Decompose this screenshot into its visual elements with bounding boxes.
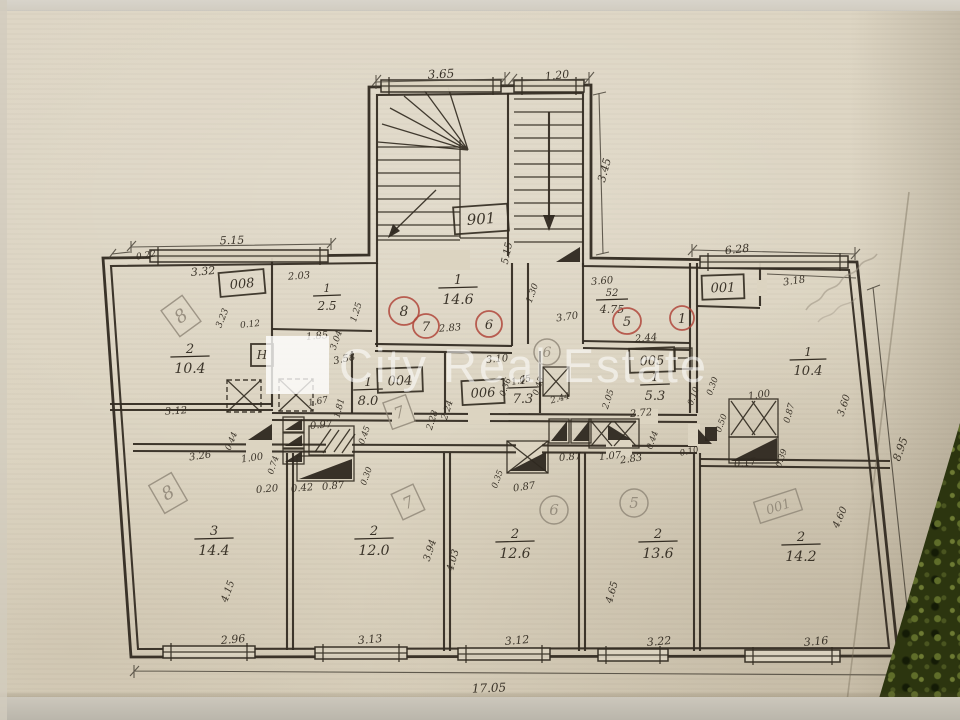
- svg-text:12.6: 12.6: [499, 546, 530, 562]
- dim-label: 3.94: [422, 538, 439, 563]
- dim-label: 1.81: [333, 397, 348, 419]
- svg-text:3.13: 3.13: [357, 632, 383, 647]
- svg-text:008: 008: [229, 276, 255, 293]
- svg-text:2: 2: [369, 524, 378, 539]
- svg-text:12.0: 12.0: [358, 543, 389, 559]
- dim-label: 0.12: [240, 319, 261, 331]
- dim-label: 3.60: [591, 275, 615, 288]
- dim-line: [767, 274, 856, 278]
- pencil-apartment-mark: 7: [391, 484, 425, 520]
- dim-label: 0.87: [783, 402, 798, 424]
- svg-text:0.10: 0.10: [679, 445, 700, 459]
- svg-text:3.65: 3.65: [427, 66, 454, 81]
- room-code-badge: 901: [453, 204, 509, 235]
- twin-door-leaves: [549, 419, 591, 443]
- dim-label: 0.44: [645, 430, 661, 451]
- dim-label: 2.44: [634, 332, 658, 345]
- staircase: [377, 87, 583, 256]
- room-area-label: 524.75: [596, 288, 628, 316]
- svg-text:1: 1: [454, 273, 462, 288]
- dim-label: 3.10: [486, 353, 510, 366]
- wardrobe-cross: [227, 380, 261, 412]
- dim-label: 3.22: [646, 634, 672, 649]
- room-code-badge: 001: [702, 274, 745, 299]
- svg-text:2.96: 2.96: [219, 632, 246, 647]
- apartment-number-mark: 7: [413, 314, 439, 338]
- svg-text:8: 8: [170, 305, 192, 329]
- pencil-apartment-mark: 6: [534, 339, 560, 365]
- dim-label: 0.30: [705, 375, 721, 397]
- dim-label: 5.15: [220, 234, 245, 248]
- svg-text:6: 6: [549, 501, 559, 519]
- room-code-badge: 005: [629, 347, 675, 373]
- svg-text:2: 2: [185, 342, 194, 357]
- svg-text:1.00: 1.00: [747, 388, 771, 402]
- svg-text:4.65: 4.65: [604, 580, 621, 605]
- svg-text:0.10: 0.10: [686, 385, 702, 407]
- door-symbol: [556, 247, 580, 262]
- svg-text:4.03: 4.03: [445, 548, 462, 573]
- svg-text:0.87: 0.87: [512, 480, 536, 494]
- outer-wall: [103, 85, 898, 657]
- room-area-label: 214.2: [781, 530, 820, 565]
- room-area-label: 15.3: [640, 370, 670, 404]
- dim-label: 2.72: [629, 407, 653, 420]
- labels-layer: 3.651.203.459015.155.150.223.320082.0312…: [135, 66, 910, 695]
- svg-text:5.15: 5.15: [500, 241, 515, 265]
- dim-label: 0.45: [357, 425, 373, 446]
- svg-text:2.24: 2.24: [440, 399, 456, 422]
- door-symbol: [248, 424, 272, 440]
- svg-text:3.70: 3.70: [555, 310, 579, 324]
- dim-label: 2.96: [219, 632, 246, 647]
- dim-label: 0.74: [266, 455, 281, 476]
- dim-label: 3.18: [782, 274, 806, 288]
- svg-text:3.32: 3.32: [190, 264, 216, 279]
- dim-label: 0.35: [490, 469, 506, 490]
- dim-label: 0.10: [679, 445, 700, 459]
- dim-label: 3.26: [188, 449, 212, 463]
- svg-text:0.17: 0.17: [733, 456, 757, 470]
- svg-text:13.6: 13.6: [642, 546, 673, 562]
- svg-text:1: 1: [324, 282, 331, 295]
- svg-text:2.5: 2.5: [316, 299, 336, 313]
- svg-text:901: 901: [466, 209, 496, 229]
- radiator-badge: H: [251, 344, 273, 366]
- svg-text:0.74: 0.74: [266, 455, 281, 476]
- floor-plan-photo: 3.651.203.459015.155.150.223.320082.0312…: [0, 0, 960, 720]
- svg-text:3.10: 3.10: [486, 353, 510, 366]
- svg-text:1.00: 1.00: [240, 451, 264, 465]
- svg-text:3.60: 3.60: [591, 275, 615, 288]
- dim-label: 0.17: [733, 456, 757, 470]
- windows-layer: [150, 77, 848, 665]
- stair-treads-left: [377, 147, 460, 236]
- interior-wall: [110, 404, 273, 410]
- dim-label: 3.70: [555, 310, 579, 324]
- svg-text:0.97: 0.97: [310, 419, 334, 432]
- svg-text:1: 1: [364, 375, 372, 389]
- dim-label: 0.10: [686, 385, 702, 407]
- svg-text:8: 8: [158, 481, 178, 505]
- svg-text:52: 52: [606, 288, 619, 299]
- svg-text:2.83: 2.83: [618, 452, 643, 466]
- svg-text:1: 1: [651, 370, 659, 384]
- room-area-label: 12.5: [313, 282, 341, 313]
- svg-text:H: H: [256, 348, 268, 362]
- dim-label: 1.20: [544, 68, 570, 83]
- svg-text:3.12: 3.12: [165, 405, 188, 418]
- dim-label: 2.24: [440, 399, 456, 422]
- pencil-apartment-mark: 5: [620, 489, 648, 517]
- svg-text:3.94: 3.94: [422, 538, 439, 563]
- dim-label: 0.87: [512, 480, 536, 494]
- svg-text:2: 2: [510, 527, 519, 542]
- svg-text:0.87: 0.87: [322, 480, 346, 493]
- dim-label: 4.15: [219, 579, 237, 605]
- dim-label: 3.23: [215, 307, 232, 330]
- svg-text:3.18: 3.18: [782, 274, 806, 288]
- floor-plan-drawing: 3.651.203.459015.155.150.223.320082.0312…: [0, 0, 960, 720]
- svg-text:0.30: 0.30: [359, 465, 375, 487]
- dim-label: 3.32: [190, 264, 216, 279]
- svg-text:5: 5: [623, 315, 631, 330]
- svg-text:3.26: 3.26: [188, 449, 212, 463]
- svg-text:006: 006: [470, 385, 496, 401]
- dim-label: 2.83: [438, 322, 462, 335]
- dim-label: 1.00: [747, 388, 771, 402]
- dim-label: 0.50: [714, 412, 730, 434]
- svg-text:2.72: 2.72: [629, 407, 653, 420]
- bath-hatch: [731, 401, 776, 435]
- svg-text:7: 7: [422, 320, 431, 335]
- svg-text:0.50: 0.50: [714, 412, 730, 434]
- svg-text:1: 1: [804, 345, 812, 359]
- svg-text:6.28: 6.28: [724, 242, 750, 257]
- pencil-apartment-mark: 6: [540, 496, 568, 524]
- photo-left-edge: [0, 0, 7, 720]
- svg-text:2.83: 2.83: [438, 322, 462, 335]
- svg-text:0.42: 0.42: [291, 482, 314, 495]
- svg-text:1.20: 1.20: [544, 68, 570, 83]
- svg-text:3.45: 3.45: [595, 157, 614, 184]
- apartment-number-mark: 6: [476, 311, 502, 337]
- svg-text:5: 5: [629, 494, 639, 512]
- dim-label: 2.05: [601, 388, 617, 411]
- dim-label: 2.44: [548, 391, 571, 406]
- svg-text:10.4: 10.4: [794, 364, 823, 379]
- svg-text:0.20: 0.20: [256, 483, 280, 496]
- svg-text:2.44: 2.44: [634, 332, 658, 345]
- dim-label: 4.03: [445, 548, 462, 573]
- room-area-label: 213.6: [638, 527, 677, 562]
- walls-layer: [103, 85, 898, 657]
- dim-line: [130, 665, 904, 681]
- svg-text:3.23: 3.23: [215, 307, 232, 330]
- dim-label: 1.00: [240, 451, 264, 465]
- svg-text:2: 2: [796, 530, 805, 545]
- door-symbol: [299, 459, 352, 479]
- svg-text:8.0: 8.0: [358, 394, 379, 409]
- svg-text:3.22: 3.22: [646, 634, 672, 649]
- svg-text:14.6: 14.6: [442, 292, 473, 308]
- svg-text:1.25: 1.25: [349, 301, 365, 323]
- svg-text:2: 2: [653, 527, 662, 542]
- svg-text:0.87: 0.87: [783, 402, 798, 424]
- svg-text:0.45: 0.45: [357, 425, 373, 446]
- photo-top-edge: [0, 0, 960, 11]
- svg-text:0.44: 0.44: [224, 431, 240, 452]
- dim-label: 1.05: [510, 374, 532, 388]
- svg-text:10.4: 10.4: [174, 361, 205, 377]
- dim-label: 2.83: [618, 452, 643, 466]
- dim-label: 3.16: [803, 634, 829, 649]
- room-area-label: 110.4: [790, 345, 827, 379]
- pencil-apartment-mark: 8: [149, 473, 188, 514]
- dim-label: 2.03: [287, 270, 311, 283]
- pencil-apartment-mark: 001: [754, 489, 803, 524]
- svg-text:3.16: 3.16: [803, 634, 829, 649]
- svg-text:1.85: 1.85: [306, 330, 329, 343]
- outer-wall-inner-line: [111, 93, 889, 649]
- svg-text:3.04: 3.04: [329, 329, 345, 352]
- svg-text:1: 1: [678, 312, 686, 327]
- svg-text:5.15: 5.15: [220, 234, 245, 248]
- room-code-badge: 008: [219, 269, 266, 297]
- dim-label: 5.15: [500, 241, 515, 265]
- svg-text:2.44: 2.44: [548, 391, 571, 406]
- svg-text:0.44: 0.44: [645, 430, 661, 451]
- bath-symbol: [729, 399, 778, 437]
- dim-label: 3.04: [329, 329, 345, 352]
- dim-label: 0.87: [322, 480, 346, 493]
- svg-text:8: 8: [400, 304, 409, 320]
- dim-label: 0.97: [310, 419, 334, 432]
- dim-label: 0.20: [256, 483, 280, 496]
- photo-bottom-edge: [0, 697, 960, 720]
- dim-label: 3.45: [595, 157, 614, 184]
- svg-text:0.30: 0.30: [705, 375, 721, 397]
- pencil-apartment-mark: 8: [161, 295, 201, 336]
- stair-landing-edge: [377, 238, 508, 240]
- apartment-number-mark: 5: [613, 308, 641, 334]
- svg-text:14.4: 14.4: [198, 543, 229, 559]
- svg-text:4.15: 4.15: [219, 579, 237, 605]
- dim-label: 3.13: [357, 632, 383, 647]
- dim-label: 1.85: [306, 330, 329, 343]
- dim-label: 3.65: [427, 66, 454, 81]
- dim-label: 0.30: [359, 465, 375, 487]
- svg-text:6: 6: [485, 318, 493, 333]
- svg-text:2.03: 2.03: [287, 270, 311, 283]
- svg-text:6: 6: [543, 345, 552, 361]
- svg-text:7: 7: [400, 491, 418, 513]
- dim-label: 0.87: [559, 451, 583, 464]
- dim-label: 0.44: [224, 431, 240, 452]
- dim-label: 4.65: [604, 580, 621, 605]
- dim-label: 3.12: [165, 405, 188, 418]
- dim-label: 0.42: [291, 482, 314, 495]
- interior-wall: [528, 263, 583, 344]
- room-area-label: 210.4: [170, 342, 209, 377]
- svg-text:1.67: 1.67: [307, 395, 329, 408]
- svg-text:0.35: 0.35: [490, 469, 506, 490]
- stair-winders: [378, 87, 468, 150]
- room-code-badge: 004: [377, 367, 423, 393]
- dim-label: 3.12: [504, 633, 530, 648]
- dim-label: 4.60: [830, 505, 850, 531]
- svg-text:001: 001: [710, 281, 735, 297]
- room-area-label: 212.6: [495, 527, 534, 562]
- svg-text:2.05: 2.05: [601, 388, 617, 411]
- svg-text:3.12: 3.12: [504, 633, 530, 648]
- dim-label: 6.28: [724, 242, 750, 257]
- dim-label: 1.25: [349, 301, 365, 323]
- room-area-label: 114.6: [438, 273, 477, 308]
- svg-text:001: 001: [764, 496, 792, 518]
- svg-text:1.05: 1.05: [510, 374, 532, 388]
- room-area-label: 212.0: [354, 524, 393, 559]
- svg-text:005: 005: [639, 354, 664, 370]
- svg-text:3: 3: [210, 524, 218, 539]
- interior-wall: [375, 344, 512, 353]
- dim-label: 1.67: [307, 395, 329, 408]
- svg-text:1.81: 1.81: [333, 397, 348, 419]
- svg-text:004: 004: [387, 374, 412, 390]
- room-area-label: 314.4: [194, 524, 233, 559]
- svg-text:0.87: 0.87: [559, 451, 583, 464]
- svg-text:14.2: 14.2: [785, 549, 816, 565]
- svg-text:4.60: 4.60: [830, 505, 850, 531]
- svg-text:5.3: 5.3: [645, 389, 666, 404]
- svg-text:0.12: 0.12: [240, 319, 261, 331]
